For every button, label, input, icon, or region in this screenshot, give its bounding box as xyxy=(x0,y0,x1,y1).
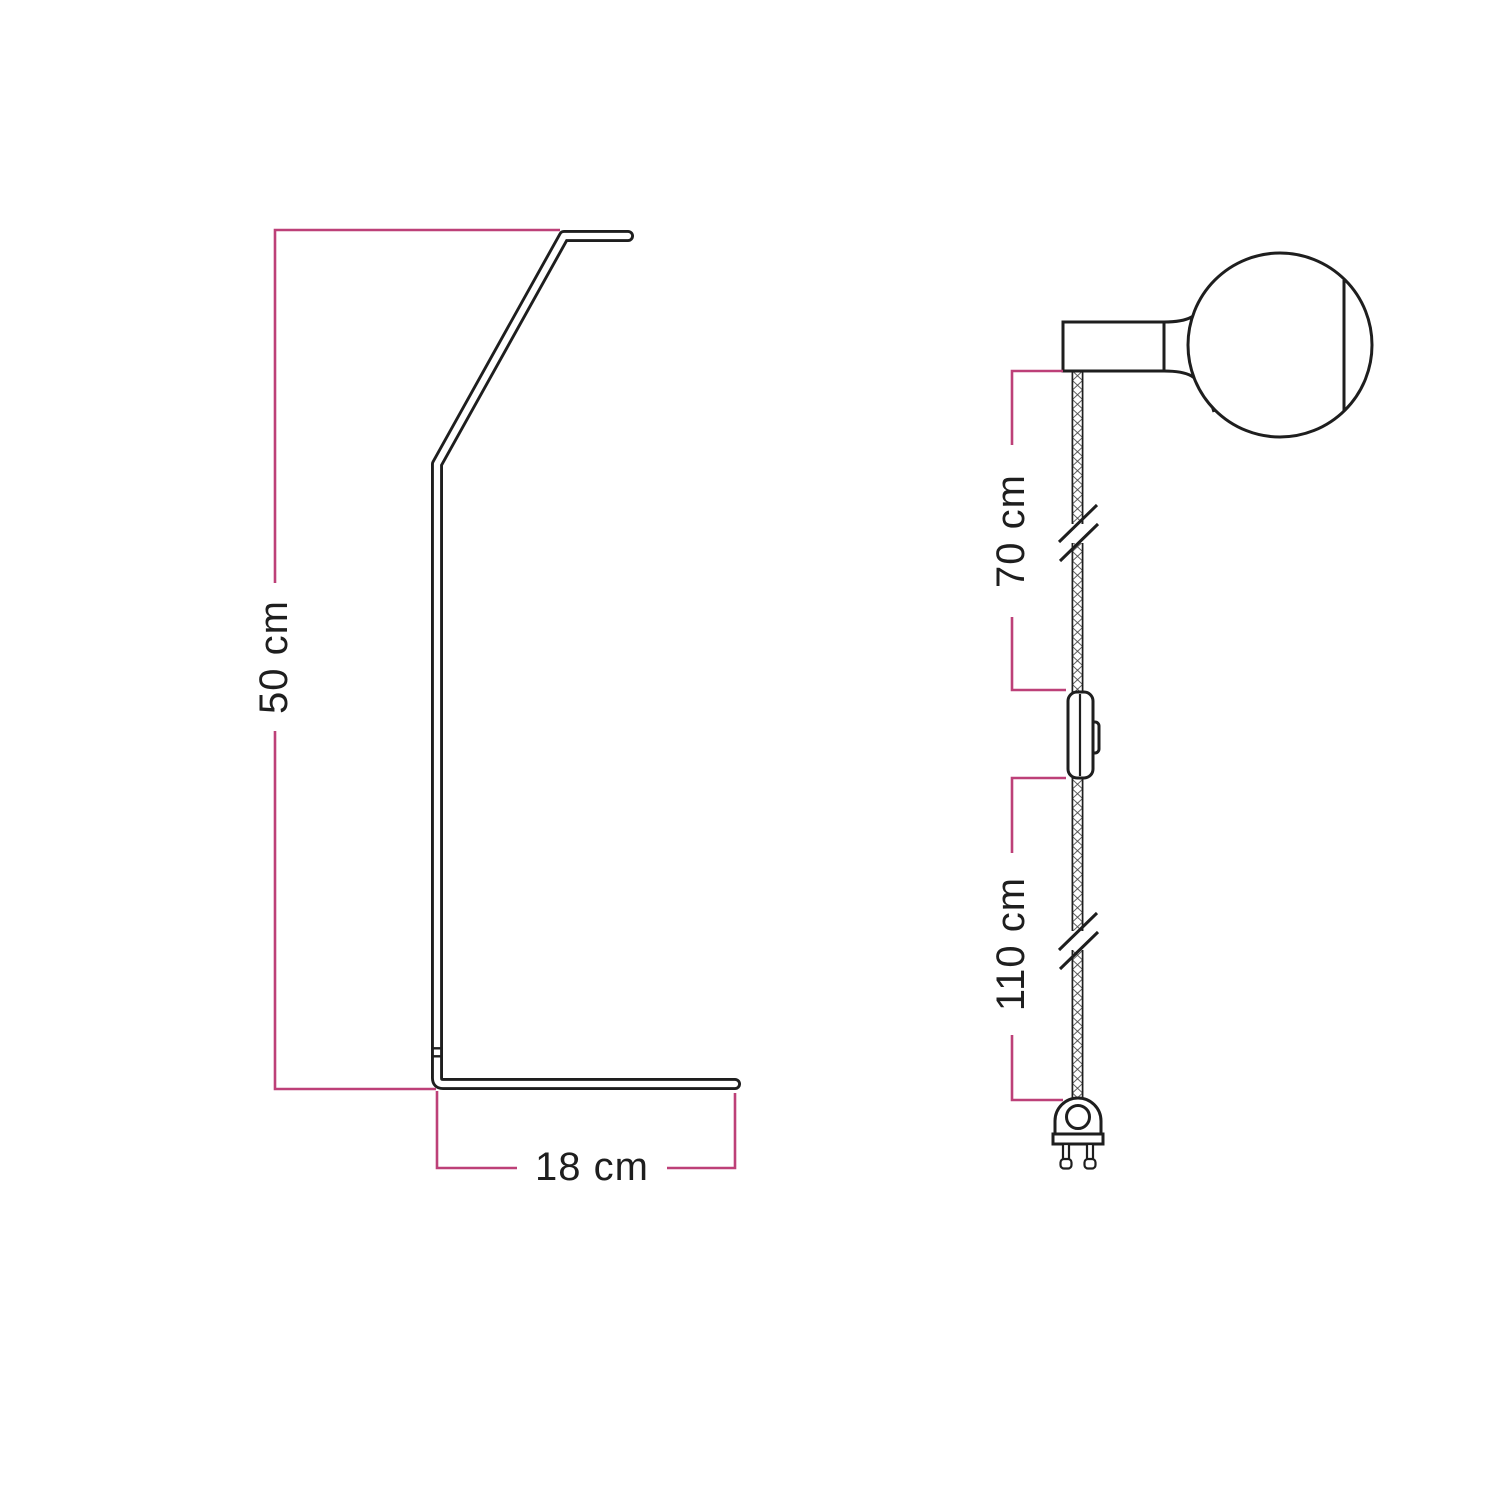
globe-bulb-icon xyxy=(1188,253,1372,437)
inline-switch-icon xyxy=(1068,692,1099,778)
stand-height-dimension-line xyxy=(275,230,560,1089)
cable-upper-length-label: 70 cm xyxy=(991,474,1031,588)
dimension-diagram: 50 cm 18 cm 70 cm 110 cm xyxy=(0,0,1500,1500)
stand-height-label: 50 cm xyxy=(254,600,294,714)
stand-depth-label: 18 cm xyxy=(535,1147,649,1187)
cable-lower-length-label: 110 cm xyxy=(991,877,1031,1011)
two-pin-plug-icon xyxy=(1053,1098,1103,1169)
diagram-artwork xyxy=(0,0,1500,1500)
lamp-stand-outline xyxy=(432,236,735,1084)
